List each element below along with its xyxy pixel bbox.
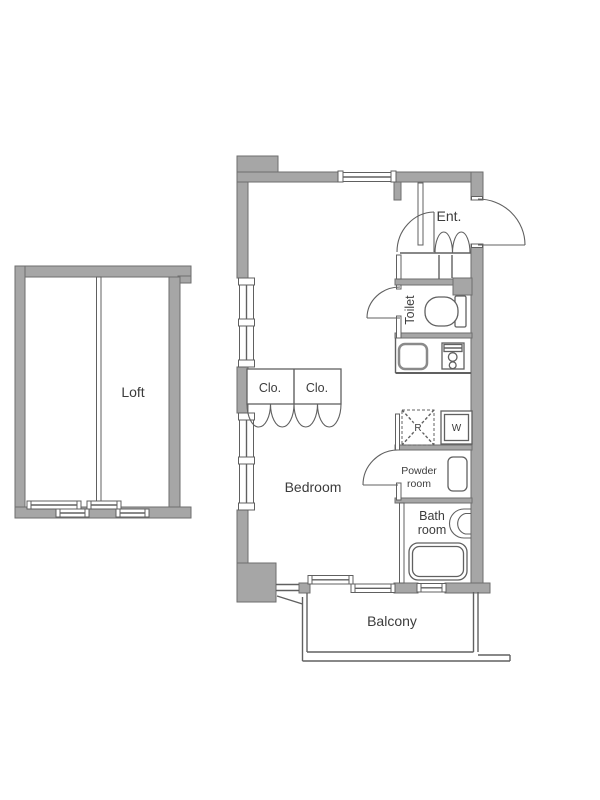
bath-label-line2: room <box>418 523 446 537</box>
powder-door <box>363 450 398 485</box>
bottom-wall-middle <box>394 583 418 593</box>
washer-space: W <box>441 411 472 444</box>
storage-left-wall <box>397 255 402 279</box>
powder-bath-wall <box>395 498 472 503</box>
loft-left-wall <box>15 266 25 518</box>
washer-label: W <box>452 423 462 434</box>
left-wall-lower <box>237 510 248 563</box>
toilet-top-wall <box>395 279 453 285</box>
bathtub <box>409 543 467 580</box>
left-wall-upper <box>237 182 248 278</box>
toilet-fixture <box>425 296 466 327</box>
shoe-closet-doors <box>435 232 470 253</box>
bath-left-wall <box>400 503 405 583</box>
toilet-label: Toilet <box>403 295 417 325</box>
bath-label-line1: Bath <box>419 509 445 523</box>
loft-divider-wall <box>97 277 102 507</box>
top-window <box>338 171 396 182</box>
hall-stub-wall <box>396 414 400 450</box>
closets: Clo. Clo. <box>247 369 341 427</box>
floor-plan-drawing: Loft <box>0 0 600 800</box>
powder-room: Powder room <box>363 450 467 500</box>
kitchen-sink <box>399 344 427 369</box>
bedroom: Clo. Clo. Bedroom <box>247 369 341 495</box>
top-wall-left <box>237 172 341 182</box>
bedroom-label: Bedroom <box>285 479 342 495</box>
bathroom-window <box>417 584 446 593</box>
right-wall <box>471 244 483 592</box>
bath-room: Bath room <box>400 503 472 583</box>
loft-room: Loft <box>15 266 191 518</box>
bottom-left-wall-block <box>237 563 276 602</box>
closet-right-label: Clo. <box>306 381 328 395</box>
toilet-room: Toilet <box>367 285 466 338</box>
loft-right-wall <box>169 277 180 507</box>
loft-top-wall <box>15 266 191 277</box>
powder-label-line2: room <box>407 478 431 490</box>
washbasin <box>448 457 467 491</box>
top-wall-right <box>394 172 472 182</box>
entrance-label: Ent. <box>437 208 462 224</box>
floor-plan-page: Loft <box>0 0 600 800</box>
powder-top-wall <box>395 445 472 450</box>
entrance-area: Ent. <box>397 183 526 279</box>
balcony-label: Balcony <box>367 613 417 629</box>
toilet-door <box>367 287 400 318</box>
entry-interior-door <box>397 212 434 252</box>
toilet-corner-block <box>453 278 472 295</box>
front-door <box>478 199 525 245</box>
bath-corner-sink <box>450 509 472 538</box>
top-right-wall-block <box>471 172 483 200</box>
refrigerator-space: R <box>402 410 434 445</box>
kitchen <box>396 338 472 373</box>
refrigerator-label: R <box>414 423 421 434</box>
powder-label-line1: Powder <box>401 465 437 477</box>
toilet-left-wall-bottom <box>397 316 402 338</box>
bottom-wall-right <box>445 583 490 593</box>
loft-label: Loft <box>121 384 144 400</box>
appliance-spaces: R W <box>396 410 473 450</box>
balcony-sliding-door <box>308 576 395 593</box>
balcony-left-diagonal <box>277 596 303 604</box>
closet-left-label: Clo. <box>259 381 281 395</box>
stove <box>442 343 464 369</box>
toilet-bottom-wall <box>395 333 472 338</box>
left-window-upper <box>239 278 255 367</box>
balcony: Balcony <box>277 592 510 661</box>
left-window-lower <box>239 413 255 510</box>
entry-partition-stub <box>394 182 401 200</box>
